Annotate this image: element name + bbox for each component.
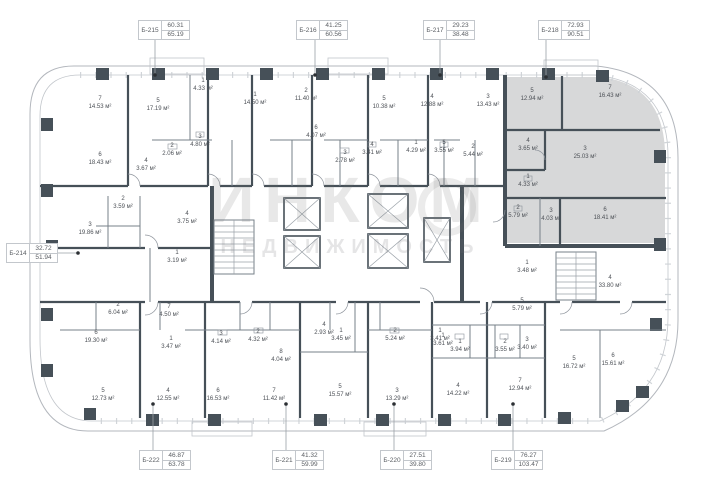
room-area: 14.22 м² <box>447 391 470 399</box>
room-area: 4.50 м² <box>159 312 178 320</box>
room-area: 4.03 м² <box>541 216 560 224</box>
room-label: 712.94 м² <box>509 378 532 394</box>
room-area: 4.29 м² <box>406 148 425 156</box>
room-number: 4 <box>157 388 180 396</box>
room-label: 714.53 м² <box>89 96 112 112</box>
room-area: 3.65 м² <box>518 146 537 154</box>
room-area: 12.73 м² <box>92 396 115 404</box>
room-label: 313.29 м² <box>386 388 409 404</box>
room-number: 3 <box>79 222 102 230</box>
unit-area-living: 32.72 <box>30 244 57 254</box>
room-area: 3.40 м² <box>517 345 536 353</box>
room-label: 615.61 м² <box>602 353 625 369</box>
room-area: 15.61 м² <box>602 361 625 369</box>
unit-areas: 60.3165.19 <box>162 21 189 39</box>
unit-tag-Б-220[interactable]: Б-22027.5139.80 <box>380 450 432 470</box>
unit-areas: 27.5139.80 <box>404 451 431 469</box>
room-number: 2 <box>508 205 527 213</box>
room-area: 3.55 м² <box>495 347 514 355</box>
room-label: 716.43 м² <box>599 85 622 101</box>
room-area: 18.41 м² <box>594 215 617 223</box>
unit-area-total: 63.78 <box>163 461 190 470</box>
room-number: 2 <box>248 329 267 337</box>
unit-areas: 72.9390.51 <box>562 21 589 39</box>
room-number: 2 <box>385 328 404 336</box>
room-label: 516.72 м² <box>563 356 586 372</box>
room-label: 319.86 м² <box>79 222 102 238</box>
unit-tag-Б-214[interactable]: Б-21432.7251.94 <box>6 243 58 263</box>
room-number: 3 <box>335 150 354 158</box>
room-label: 43.65 м² <box>518 138 537 154</box>
unit-id: Б-214 <box>7 244 30 262</box>
room-number: 1 <box>244 92 267 100</box>
unit-id: Б-215 <box>139 21 162 39</box>
room-label: 618.43 м² <box>89 152 112 168</box>
room-area: 5.79 м² <box>508 213 527 221</box>
room-number: 1 <box>450 339 469 347</box>
room-label: 618.41 м² <box>594 207 617 223</box>
room-number: 3 <box>541 208 560 216</box>
room-area: 12.55 м² <box>157 396 180 404</box>
unit-area-total: 103.47 <box>515 461 542 470</box>
room-area: 3.75 м² <box>177 219 196 227</box>
room-area: 3.47 м² <box>161 344 180 352</box>
room-number: 2 <box>108 302 127 310</box>
room-number: 6 <box>306 125 325 133</box>
room-number: 1 <box>161 336 180 344</box>
room-area: 3.48 м² <box>517 268 536 276</box>
room-number: 2 <box>162 143 181 151</box>
unit-areas: 32.7251.94 <box>30 244 57 262</box>
room-label: 43.41 м² <box>362 142 381 158</box>
room-area: 13.29 м² <box>386 396 409 404</box>
room-area: 3.41 м² <box>362 150 381 158</box>
room-label: 433.80 м² <box>599 275 622 291</box>
room-number: 2 <box>495 339 514 347</box>
room-label: 84.04 м² <box>271 349 290 365</box>
room-area: 15.57 м² <box>329 392 352 400</box>
room-area: 12.88 м² <box>421 102 444 110</box>
room-area: 5.79 м² <box>512 306 531 314</box>
room-area: 18.43 м² <box>89 160 112 168</box>
room-number: 5 <box>512 298 531 306</box>
room-number: 4 <box>136 158 155 166</box>
room-area: 16.53 м² <box>207 396 230 404</box>
room-number: 6 <box>602 353 625 361</box>
unit-tag-Б-219[interactable]: Б-21976.27103.47 <box>491 450 543 470</box>
room-label: 23.55 м² <box>495 339 514 355</box>
room-label: 512.94 м² <box>521 88 544 104</box>
room-label: 74.50 м² <box>159 304 178 320</box>
room-area: 6.04 м² <box>108 310 127 318</box>
room-area: 3.55 м² <box>434 148 453 156</box>
unit-area-total: 59.99 <box>296 461 323 470</box>
room-number: 5 <box>563 356 586 364</box>
room-label: 325.03 м² <box>574 146 597 162</box>
unit-area-living: 29.23 <box>447 21 474 31</box>
room-label: 43.75 м² <box>177 211 196 227</box>
room-area: 4.33 м² <box>518 182 537 190</box>
room-number: 3 <box>211 331 230 339</box>
unit-area-living: 27.51 <box>404 451 431 461</box>
room-label: 13.45 м² <box>331 328 350 344</box>
room-label: 32.78 м² <box>335 150 354 166</box>
room-label: 34.03 м² <box>541 208 560 224</box>
room-number: 4 <box>599 275 622 283</box>
unit-areas: 41.3259.99 <box>296 451 323 469</box>
room-label: 313.43 м² <box>477 94 500 110</box>
room-label: 64.07 м² <box>306 125 325 141</box>
unit-tag-Б-221[interactable]: Б-22141.3259.99 <box>272 450 324 470</box>
room-number: 3 <box>477 94 500 102</box>
room-number: 5 <box>434 140 453 148</box>
room-number: 6 <box>594 207 617 215</box>
room-number: 3 <box>190 134 209 142</box>
unit-area-total: 60.56 <box>320 31 347 40</box>
room-label: 512.73 м² <box>92 388 115 404</box>
room-area: 4.80 м² <box>190 142 209 150</box>
room-area: 14.50 м² <box>244 100 267 108</box>
room-area: 33.80 м² <box>599 283 622 291</box>
room-label: 25.44 м² <box>463 144 482 160</box>
room-label: 515.57 м² <box>329 384 352 400</box>
unit-area-living: 41.25 <box>320 21 347 31</box>
room-label: 414.22 м² <box>447 383 470 399</box>
room-area: 4.33 м² <box>193 86 212 94</box>
room-area: 3.94 м² <box>450 347 469 355</box>
room-label: 114.50 м² <box>244 92 267 108</box>
unit-tag-Б-216[interactable]: Б-21641.2560.56 <box>296 20 348 40</box>
unit-area-total: 39.80 <box>404 461 431 470</box>
unit-area-total: 65.19 <box>162 31 189 40</box>
unit-tag-Б-222[interactable]: Б-22246.8763.78 <box>139 450 191 470</box>
room-number: 7 <box>599 85 622 93</box>
room-area: 19.30 м² <box>85 338 108 346</box>
unit-area-living: 41.32 <box>296 451 323 461</box>
room-area: 3.67 м² <box>136 166 155 174</box>
floor-plan-canvas: ИНКОМ НЕДВИЖИМОСТЬ 714.53 м²517.19 м²14.… <box>0 0 701 496</box>
room-number: 3 <box>386 388 409 396</box>
room-area: 13.43 м² <box>477 102 500 110</box>
room-number: 5 <box>373 96 396 104</box>
room-label: 711.42 м² <box>263 388 285 404</box>
room-number: 2 <box>113 196 132 204</box>
room-area: 19.86 м² <box>79 230 102 238</box>
room-area: 14.53 м² <box>89 104 112 112</box>
room-label: 14.33 м² <box>518 174 537 190</box>
room-number: 5 <box>329 384 352 392</box>
unit-areas: 29.2338.48 <box>447 21 474 39</box>
room-label: 517.19 м² <box>147 98 170 114</box>
unit-id: Б-222 <box>140 451 163 469</box>
room-area: 3.45 м² <box>331 336 350 344</box>
room-number: 4 <box>518 138 537 146</box>
unit-areas: 46.8763.78 <box>163 451 190 469</box>
room-label: 24.32 м² <box>248 329 267 345</box>
unit-area-total: 38.48 <box>447 31 474 40</box>
room-label: 34.80 м² <box>190 134 209 150</box>
room-label: 25.79 м² <box>508 205 527 221</box>
room-area: 5.44 м² <box>463 152 482 160</box>
floor-plan-drawing <box>0 0 701 496</box>
room-area: 16.72 м² <box>563 364 586 372</box>
room-number: 6 <box>85 330 108 338</box>
room-label: 55.79 м² <box>512 298 531 314</box>
room-number: 8 <box>271 349 290 357</box>
room-number: 5 <box>92 388 115 396</box>
room-number: 1 <box>331 328 350 336</box>
room-label: 13.47 м² <box>161 336 180 352</box>
room-area: 12.94 м² <box>521 96 544 104</box>
room-area: 16.43 м² <box>599 93 622 101</box>
room-area: 11.40 м² <box>295 96 317 104</box>
unit-id: Б-221 <box>273 451 296 469</box>
unit-area-living: 60.31 <box>162 21 189 31</box>
room-number: 7 <box>263 388 285 396</box>
unit-areas: 76.27103.47 <box>515 451 542 469</box>
room-label: 13.94 м² <box>450 339 469 355</box>
unit-id: Б-220 <box>381 451 404 469</box>
room-label: 53.55 м² <box>434 140 453 156</box>
unit-area-living: 76.27 <box>515 451 542 461</box>
room-label: 22.06 м² <box>162 143 181 159</box>
room-area: 17.19 м² <box>147 106 170 114</box>
room-label: 25.24 м² <box>385 328 404 344</box>
room-label: 23.59 м² <box>113 196 132 212</box>
unit-area-total: 51.94 <box>30 254 57 263</box>
room-label: 33.40 м² <box>517 337 536 353</box>
room-number: 4 <box>421 94 444 102</box>
room-label: 14.29 м² <box>406 140 425 156</box>
room-area: 11.42 м² <box>263 396 285 404</box>
watermark-logo-circle <box>418 178 476 236</box>
unit-areas: 41.2560.56 <box>320 21 347 39</box>
room-number: 3 <box>517 337 536 345</box>
unit-tag-Б-215[interactable]: Б-21560.3165.19 <box>138 20 190 40</box>
room-label: 13.48 м² <box>517 260 536 276</box>
room-label: 616.53 м² <box>207 388 230 404</box>
room-number: 5 <box>521 88 544 96</box>
unit-area-total: 90.51 <box>562 31 589 40</box>
room-number: 7 <box>89 96 112 104</box>
room-label: 211.40 м² <box>295 88 317 104</box>
unit-tag-Б-217[interactable]: Б-21729.2338.48 <box>423 20 475 40</box>
unit-id: Б-216 <box>297 21 320 39</box>
room-label: 510.38 м² <box>373 96 396 112</box>
room-area: 5.24 м² <box>385 336 404 344</box>
room-area: 12.94 м² <box>509 386 532 394</box>
unit-area-living: 46.87 <box>163 451 190 461</box>
room-number: 2 <box>295 88 317 96</box>
room-area: 4.32 м² <box>248 337 267 345</box>
room-number: 2 <box>463 144 482 152</box>
room-number: 6 <box>207 388 230 396</box>
room-area: 3.59 м² <box>113 204 132 212</box>
room-area: 4.14 м² <box>211 339 230 347</box>
room-area: 2.78 м² <box>335 158 354 166</box>
room-number: 1 <box>406 140 425 148</box>
room-number: 1 <box>517 260 536 268</box>
unit-tag-Б-218[interactable]: Б-21872.9390.51 <box>538 20 590 40</box>
room-number: 1 <box>193 78 212 86</box>
room-label: 43.67 м² <box>136 158 155 174</box>
room-number: 3 <box>574 146 597 154</box>
room-area: 25.03 м² <box>574 154 597 162</box>
room-number: 1 <box>518 174 537 182</box>
room-number: 6 <box>89 152 112 160</box>
room-label: 14.33 м² <box>193 78 212 94</box>
room-area: 3.19 м² <box>167 258 186 266</box>
room-area: 4.04 м² <box>271 357 290 365</box>
room-area: 10.38 м² <box>373 104 396 112</box>
unit-id: Б-218 <box>539 21 562 39</box>
room-number: 7 <box>509 378 532 386</box>
room-label: 412.55 м² <box>157 388 180 404</box>
room-area: 2.06 м² <box>162 151 181 159</box>
room-label: 412.88 м² <box>421 94 444 110</box>
unit-id: Б-217 <box>424 21 447 39</box>
room-number: 7 <box>159 304 178 312</box>
room-number: 1 <box>167 250 186 258</box>
room-number: 5 <box>147 98 170 106</box>
room-label: 13.19 м² <box>167 250 186 266</box>
room-number: 4 <box>362 142 381 150</box>
room-number: 4 <box>447 383 470 391</box>
unit-area-living: 72.93 <box>562 21 589 31</box>
unit-id: Б-219 <box>492 451 515 469</box>
room-area: 4.07 м² <box>306 133 325 141</box>
room-number: 4 <box>177 211 196 219</box>
room-label: 34.14 м² <box>211 331 230 347</box>
room-label: 26.04 м² <box>108 302 127 318</box>
room-label: 619.30 м² <box>85 330 108 346</box>
